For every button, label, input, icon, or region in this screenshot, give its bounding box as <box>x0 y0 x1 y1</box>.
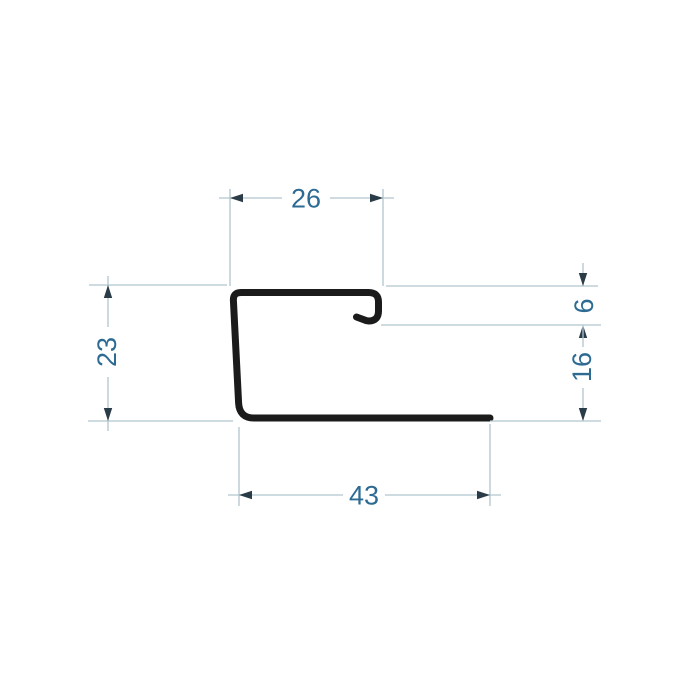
arrowhead-down-icon <box>579 273 587 286</box>
arrowhead-down-icon <box>579 408 587 421</box>
dimension-left-height: 23 <box>88 276 233 431</box>
profile-drawing-canvas: 26 23 6 16 <box>0 0 700 700</box>
arrowhead-down-icon <box>104 408 112 421</box>
profile-path <box>233 293 490 419</box>
arrowhead-left-icon <box>239 491 252 499</box>
drawing-stage: 26 23 6 16 <box>0 0 700 700</box>
arrowhead-up-icon <box>104 285 112 298</box>
dim-label-left-height: 23 <box>92 337 122 367</box>
arrowhead-left-icon <box>230 194 243 202</box>
dimension-hook-height: 6 <box>381 263 601 338</box>
dimension-right-lower-height: 16 <box>490 325 601 421</box>
arrowhead-right-icon <box>370 194 383 202</box>
dim-label-right-lower-height: 16 <box>567 352 597 382</box>
dim-label-bottom-width: 43 <box>349 481 379 511</box>
dim-label-top-width: 26 <box>291 184 321 214</box>
dim-label-hook-height: 6 <box>569 298 599 313</box>
arrowhead-right-icon <box>477 491 490 499</box>
profile-outline <box>233 293 490 419</box>
dimension-top-width: 26 <box>219 184 394 287</box>
dimension-bottom-width: 43 <box>228 424 501 511</box>
